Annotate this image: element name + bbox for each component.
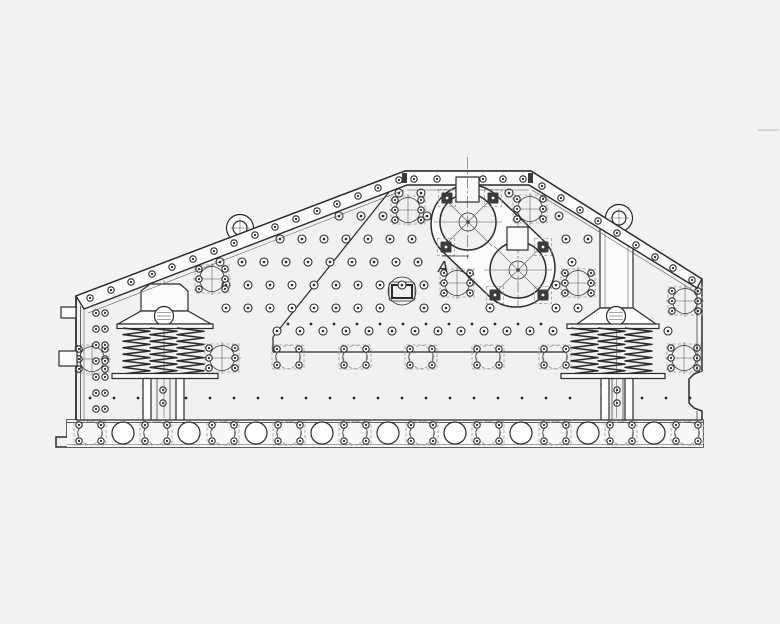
band-bolt-hole (434, 176, 440, 182)
panel-bolt-hole (364, 235, 372, 243)
rail-hole (577, 422, 599, 444)
panel-bolt-hole (376, 281, 384, 289)
panel-bolt-hole (486, 304, 494, 312)
band-bolt-hole (190, 256, 196, 262)
center-mark-dot (379, 323, 382, 326)
rail-hole (245, 422, 267, 444)
panel-bolt-hole (282, 258, 290, 266)
panel-bolt-hole (562, 235, 570, 243)
band-bolt-hole (689, 277, 695, 283)
center-mark-dot (305, 397, 308, 400)
center-mark-dot (540, 323, 543, 326)
panel-bolt-hole (296, 327, 304, 335)
center-mark-dot (425, 397, 428, 400)
center-mark-dot (281, 397, 284, 400)
center-mark-dot (137, 397, 140, 400)
center-mark-dot (89, 397, 92, 400)
band-bolt-hole (411, 176, 417, 182)
band-bolt-hole (652, 254, 658, 260)
panel-bolt-hole (379, 212, 387, 220)
bracket-bolt-hole (160, 400, 166, 406)
band-bolt-hole (500, 176, 506, 182)
edge-bolt-hole (93, 358, 99, 364)
panel-bolt-hole (319, 327, 327, 335)
bracket-bolt-hole (614, 387, 620, 393)
center-mark-dot (471, 323, 474, 326)
panel-bolt-hole (457, 327, 465, 335)
panel-bolt-hole (288, 304, 296, 312)
band-bolt-hole (520, 176, 526, 182)
band-bolt-hole (169, 264, 175, 270)
panel-bolt-hole (584, 235, 592, 243)
panel-bolt-hole (555, 212, 563, 220)
band-bolt-hole (375, 185, 381, 191)
center-mark-dot (377, 397, 380, 400)
panel-bolt-hole (434, 327, 442, 335)
section-label-a: A (437, 258, 448, 276)
panel-bolt-hole (260, 258, 268, 266)
edge-bolt-hole (102, 374, 108, 380)
panel-bolt-hole (238, 258, 246, 266)
center-mark-dot (113, 397, 116, 400)
panel-bolt-hole (276, 235, 284, 243)
center-mark-dot (517, 323, 520, 326)
center-mark-dot (449, 397, 452, 400)
panel-bolt-hole (222, 304, 230, 312)
band-bolt-hole (108, 287, 114, 293)
center-mark-dot (287, 323, 290, 326)
panel-bolt-hole (357, 212, 365, 220)
panel-bolt-hole (392, 258, 400, 266)
panel-bolt-hole (552, 304, 560, 312)
panel-bolt-hole (376, 304, 384, 312)
band-bolt-hole (480, 176, 486, 182)
panel-bolt-hole (503, 327, 511, 335)
band-bolt-hole (670, 265, 676, 271)
panel-bolt-hole (326, 258, 334, 266)
drawing-canvas: A (0, 0, 780, 624)
band-bolt-hole (128, 279, 134, 285)
flange-group (193, 263, 231, 295)
edge-bolt-hole (93, 342, 99, 348)
center-mark-dot (209, 397, 212, 400)
center-mark-dot (569, 397, 572, 400)
edge-bolt-hole (93, 310, 99, 316)
edge-clip (61, 307, 76, 318)
panel-bolt-hole (304, 258, 312, 266)
rail-hole (178, 422, 200, 444)
panel-bolt-hole (365, 327, 373, 335)
band-bolt-hole (334, 201, 340, 207)
panel-bolt-hole (244, 304, 252, 312)
edge-clip (59, 351, 77, 366)
center-mark-dot (494, 323, 497, 326)
panel-bolt-hole (664, 327, 672, 335)
panel-bolt-hole (332, 304, 340, 312)
rail-hole (311, 422, 333, 444)
panel-bolt-hole (342, 327, 350, 335)
panel-bolt-hole (332, 281, 340, 289)
panel-bolt-hole (574, 304, 582, 312)
panel-bolt-hole (298, 235, 306, 243)
rail-hole (643, 422, 665, 444)
center-mark-dot (185, 397, 188, 400)
band-bolt-hole (539, 183, 545, 189)
bracket-bolt-hole (160, 387, 166, 393)
panel-bolt-hole (388, 327, 396, 335)
panel-bolt-hole (348, 258, 356, 266)
band-bolt-hole (614, 230, 620, 236)
band-bolt-hole (595, 218, 601, 224)
center-mark-dot (641, 397, 644, 400)
band-bolt-hole (558, 195, 564, 201)
center-mark-dot (665, 397, 668, 400)
panel-bolt-hole (526, 327, 534, 335)
center-mark-dot (497, 397, 500, 400)
center-mark-dot (333, 323, 336, 326)
panel-bolt-hole (411, 327, 419, 335)
flange-group (511, 193, 549, 225)
center-mark-dot (329, 397, 332, 400)
band-bolt-hole (87, 295, 93, 301)
edge-bolt-hole (102, 358, 108, 364)
center-mark-dot (425, 323, 428, 326)
panel-bolt-hole (288, 281, 296, 289)
panel-bolt-hole (342, 235, 350, 243)
panel-bolt-hole (320, 235, 328, 243)
panel-bolt-hole (273, 327, 281, 335)
edge-bolt-hole (93, 374, 99, 380)
rail-hole (112, 422, 134, 444)
bracket-bolt-hole (614, 400, 620, 406)
edge-bolt-hole (93, 390, 99, 396)
band-bolt-hole (577, 207, 583, 213)
center-mark-dot (310, 323, 313, 326)
center-mark-dot (356, 323, 359, 326)
band-bolt-hole (272, 224, 278, 230)
panel-bolt-hole (266, 304, 274, 312)
center-mark-dot (353, 397, 356, 400)
panel-bolt-hole (386, 235, 394, 243)
feed-stub-2 (507, 227, 528, 250)
panel-bolt-hole (408, 235, 416, 243)
rail-hole (377, 422, 399, 444)
panel-bolt-hole (244, 281, 252, 289)
edge-bolt-hole (93, 326, 99, 332)
panel-bolt-hole (420, 304, 428, 312)
flange-group (666, 285, 704, 317)
technical-drawing-vibrating-screen: A (0, 0, 780, 624)
panel-bolt-hole (310, 281, 318, 289)
flange-group (389, 194, 427, 226)
edge-bolt-hole (93, 406, 99, 412)
panel-bolt-hole (310, 304, 318, 312)
center-mark-dot (545, 397, 548, 400)
panel-bolt-hole (549, 327, 557, 335)
edge-bolt-hole (102, 310, 108, 316)
panel-bolt-hole (266, 281, 274, 289)
center-mark-dot (521, 397, 524, 400)
center-mark-dot (233, 397, 236, 400)
panel-bolt-hole (370, 258, 378, 266)
center-mark-dot (401, 397, 404, 400)
center-mark-dot (448, 323, 451, 326)
rail-bolt-groups (74, 421, 703, 445)
flange-group (559, 267, 597, 299)
panel-bolt-hole (398, 281, 406, 289)
band-bolt-hole (149, 271, 155, 277)
band-bolt-hole (633, 242, 639, 248)
flange-group (203, 342, 241, 374)
center-mark-dot (473, 397, 476, 400)
panel-bolt-hole (354, 281, 362, 289)
panel-bolt-hole (335, 212, 343, 220)
center-mark-dot (402, 323, 405, 326)
edge-bolt-hole (102, 390, 108, 396)
edge-bolt-hole (102, 326, 108, 332)
edge-bolt-hole (102, 342, 108, 348)
band-bolt-hole (211, 248, 217, 254)
band-bolt-hole (396, 177, 402, 183)
panel-bolt-hole (568, 258, 576, 266)
band-bolt-hole (293, 216, 299, 222)
panel-bolt-hole (480, 327, 488, 335)
center-mark-dot (689, 397, 692, 400)
rail-hole (444, 422, 466, 444)
edge-bolt-hole (102, 406, 108, 412)
band-bolt-hole (314, 208, 320, 214)
panel-bolt-hole (420, 281, 428, 289)
band-bolt-hole (231, 240, 237, 246)
panel-bolt-hole (354, 304, 362, 312)
center-mark-dot (257, 397, 260, 400)
band-bolt-hole (355, 193, 361, 199)
panel-bolt-hole (414, 258, 422, 266)
panel-bolt-hole (442, 304, 450, 312)
rail-hole (510, 422, 532, 444)
band-bolt-hole (252, 232, 258, 238)
